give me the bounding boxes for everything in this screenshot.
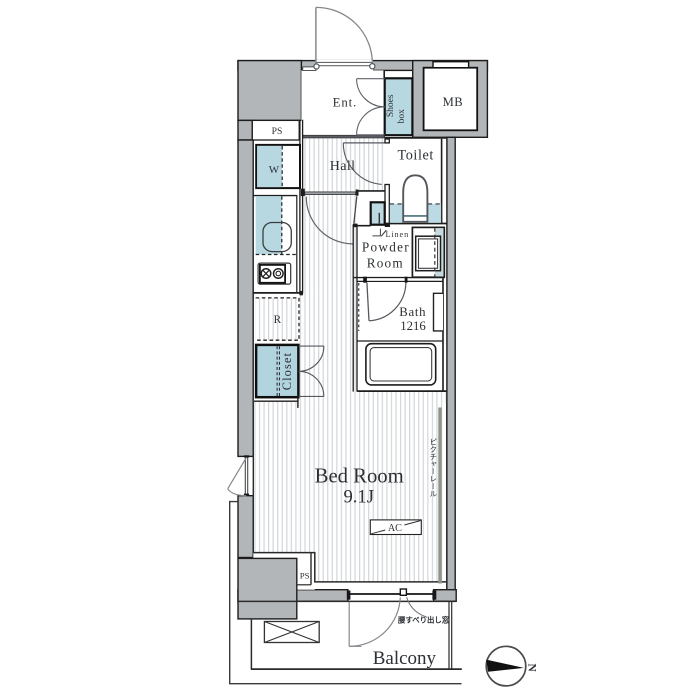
svg-text:PS: PS [300, 571, 310, 581]
svg-text:1216: 1216 [400, 319, 426, 333]
svg-text:MB: MB [443, 95, 464, 109]
svg-text:Hall: Hall [330, 159, 356, 174]
svg-text:Balcony: Balcony [373, 648, 437, 669]
svg-text:ピクチャーレール: ピクチャーレール [428, 438, 437, 497]
svg-text:W: W [269, 164, 280, 176]
svg-text:AC: AC [388, 523, 402, 534]
svg-text:9.1J: 9.1J [343, 487, 373, 508]
svg-text:Ent.: Ent. [333, 96, 358, 110]
svg-text:Bath: Bath [399, 305, 426, 319]
svg-text:Powder: Powder [362, 240, 410, 255]
svg-text:Toilet: Toilet [397, 148, 434, 164]
svg-text:Bed Room: Bed Room [315, 466, 404, 488]
svg-text:Room: Room [367, 256, 404, 271]
svg-text:R: R [274, 314, 282, 326]
svg-text:N: N [526, 663, 538, 672]
svg-text:box: box [397, 109, 407, 124]
svg-text:Closet: Closet [280, 352, 294, 390]
svg-text:Shoes: Shoes [386, 94, 396, 117]
svg-text:Linen: Linen [385, 230, 409, 239]
svg-text:腰すべり出し窓: 腰すべり出し窓 [397, 616, 450, 625]
svg-text:PS: PS [272, 126, 283, 137]
